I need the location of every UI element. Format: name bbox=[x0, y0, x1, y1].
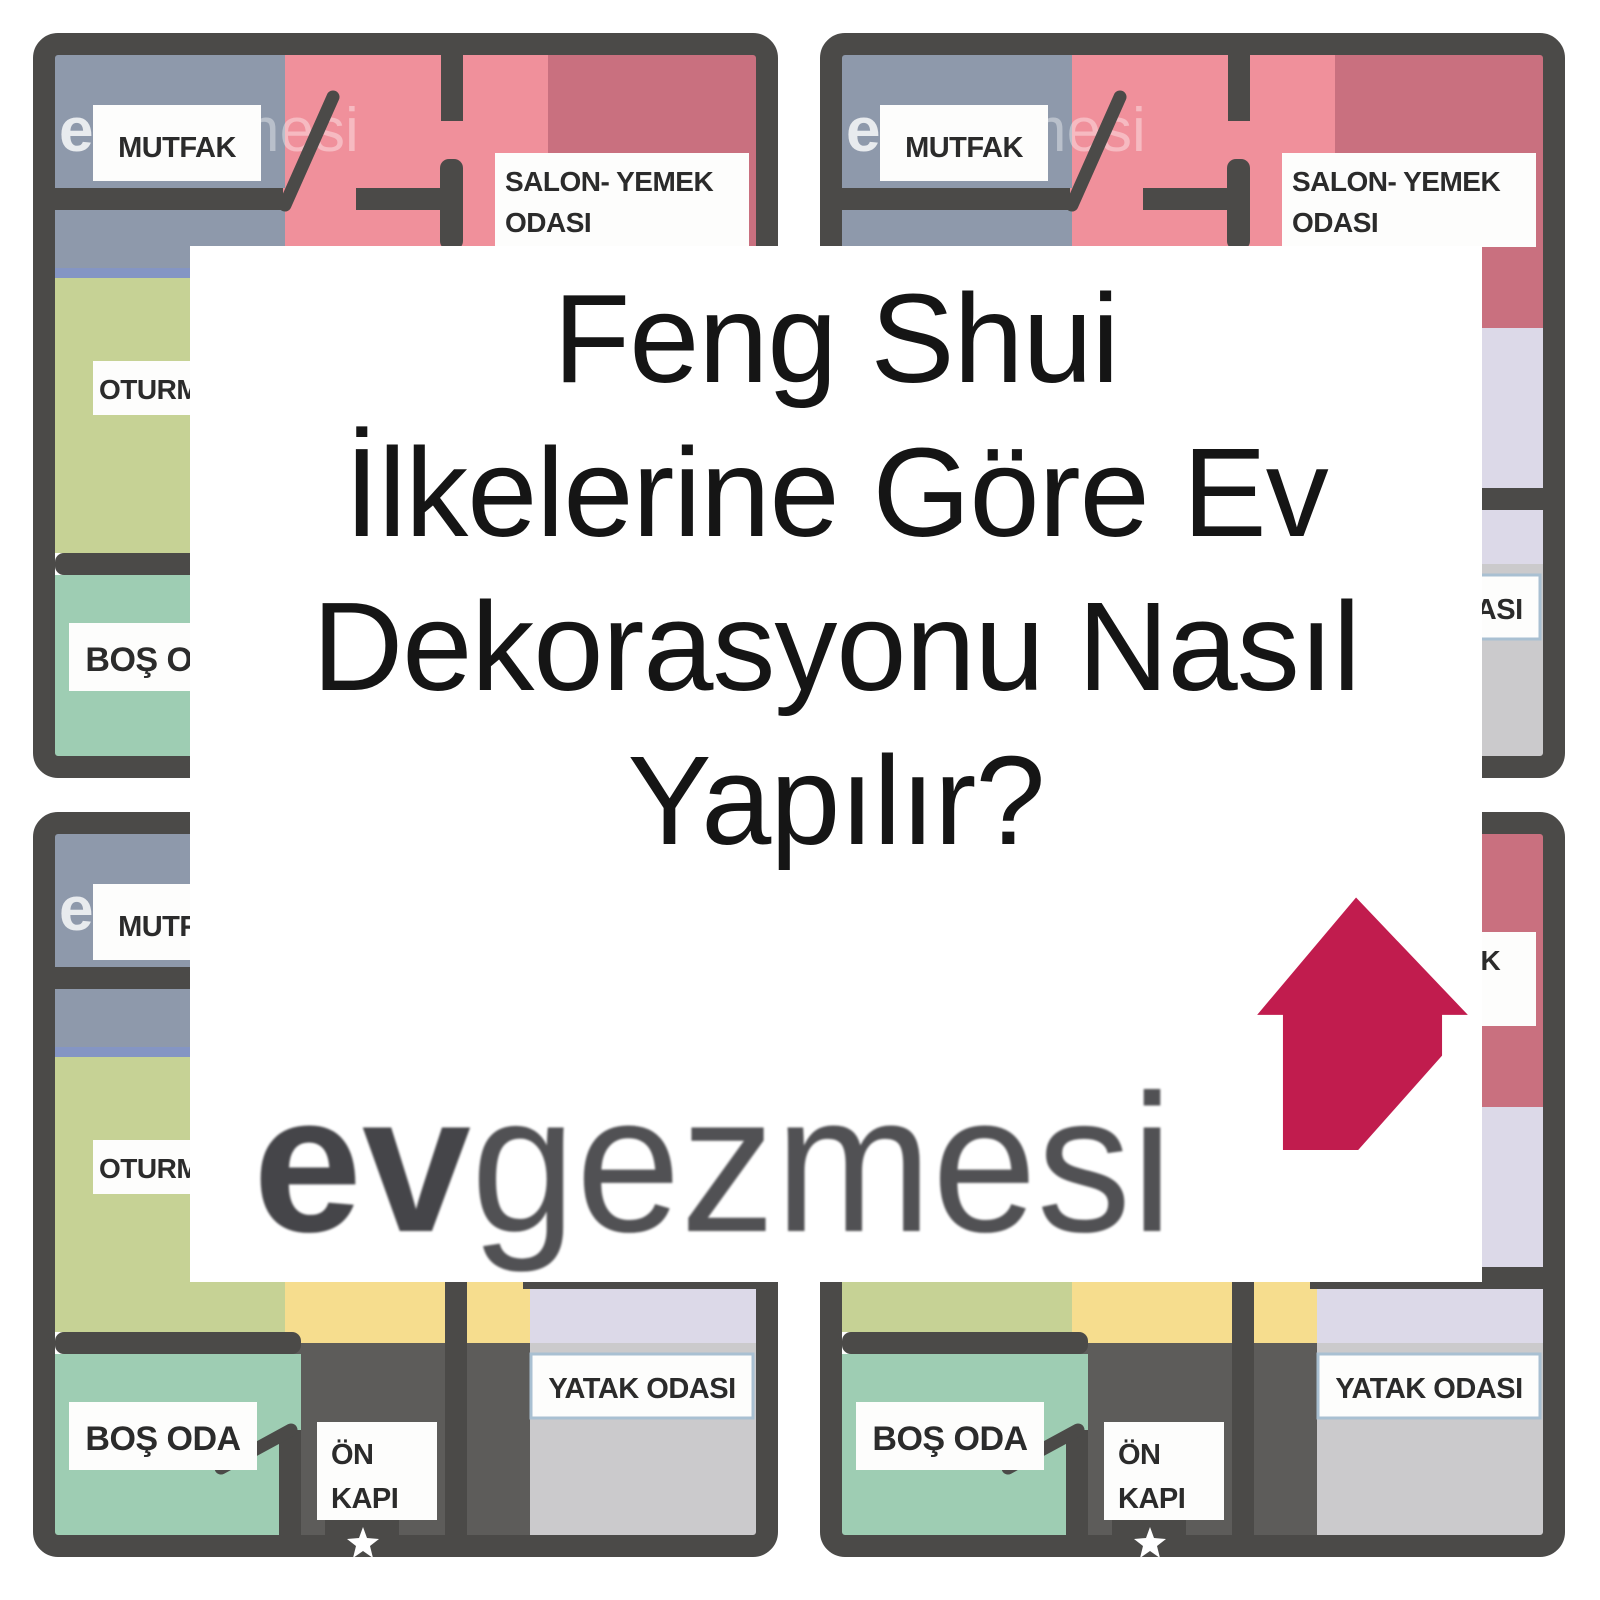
logo-text-bold: ev bbox=[253, 1054, 471, 1273]
logo-text-rest: gezmesi bbox=[471, 1054, 1173, 1273]
logo-wordmark: ev gezmesi bbox=[253, 1054, 1173, 1273]
page: { "card": { "title_lines": ["Feng Shui",… bbox=[0, 0, 1600, 1600]
house-arrow-icon bbox=[1257, 898, 1468, 1150]
logo: ev gezmesi bbox=[190, 246, 1482, 1282]
overlay-card: Feng Shui İlkelerine Göre Ev Dekorasyonu… bbox=[190, 246, 1482, 1282]
